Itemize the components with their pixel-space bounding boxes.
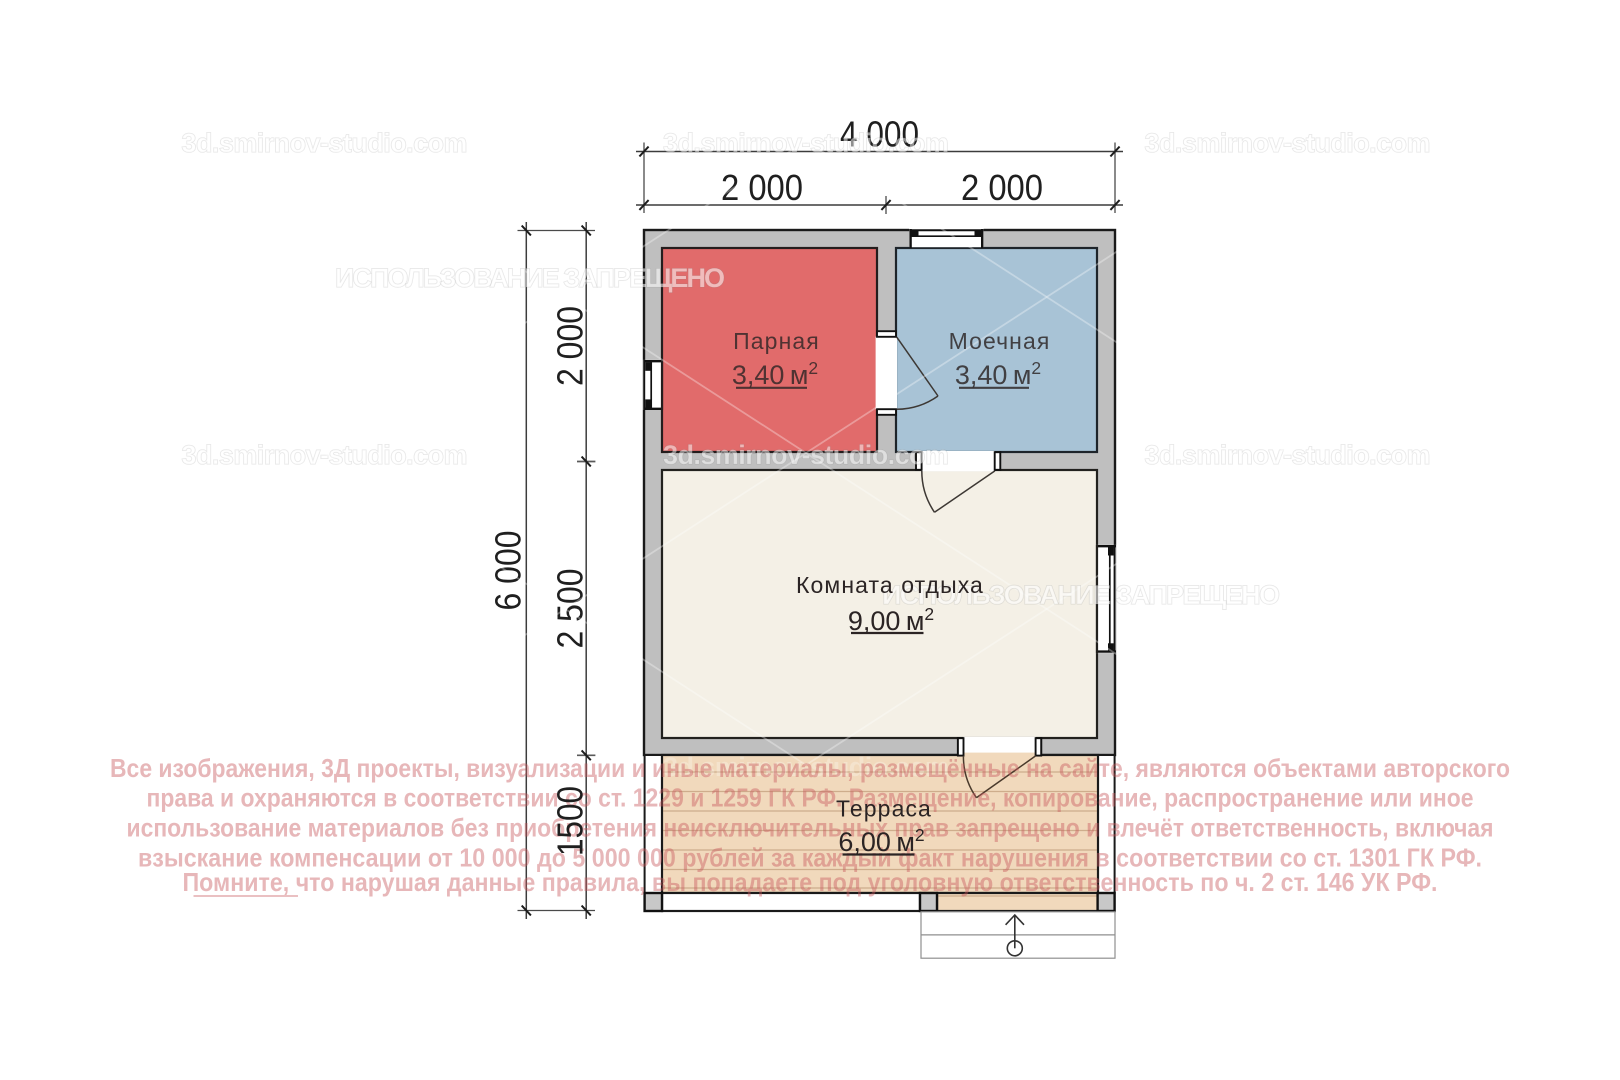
svg-text:использование материалов без п: использование материалов без приобретени… bbox=[127, 813, 1494, 843]
svg-text:Помните, что нарушая данные пр: Помните, что нарушая данные правила, вы … bbox=[183, 867, 1438, 897]
svg-text:6,00 м2: 6,00 м2 bbox=[838, 825, 924, 857]
svg-text:3d.smirnov-studio.com: 3d.smirnov-studio.com bbox=[663, 128, 949, 158]
svg-text:2 000: 2 000 bbox=[550, 306, 591, 386]
svg-text:2 000: 2 000 bbox=[961, 167, 1043, 208]
svg-text:3d.smirnov-studio.com: 3d.smirnov-studio.com bbox=[182, 128, 468, 158]
svg-text:права и охраняются в соответст: права и охраняются в соответствии со ст.… bbox=[147, 783, 1474, 813]
svg-text:Терраса: Терраса bbox=[836, 796, 932, 822]
svg-text:3d.smirnov-studio.com: 3d.smirnov-studio.com bbox=[182, 440, 468, 470]
svg-text:3d.smirnov-studio.com: 3d.smirnov-studio.com bbox=[1145, 128, 1431, 158]
svg-text:3,40 м2: 3,40 м2 bbox=[955, 358, 1041, 390]
svg-text:Все изображения, 3Д проекты, в: Все изображения, 3Д проекты, визуализаци… bbox=[110, 753, 1510, 783]
svg-text:3,40 м2: 3,40 м2 bbox=[732, 358, 818, 390]
svg-text:Моечная: Моечная bbox=[949, 328, 1051, 354]
svg-text:Комната отдыха: Комната отдыха bbox=[796, 572, 984, 598]
svg-text:2 500: 2 500 bbox=[550, 569, 591, 649]
svg-text:3d.smirnov-studio.com: 3d.smirnov-studio.com bbox=[663, 440, 949, 470]
svg-text:3d.smirnov-studio.com: 3d.smirnov-studio.com bbox=[1145, 440, 1431, 470]
svg-text:Парная: Парная bbox=[733, 328, 820, 354]
svg-text:1500: 1500 bbox=[550, 786, 591, 856]
svg-text:6 000: 6 000 bbox=[488, 531, 529, 611]
svg-text:9,00 м2: 9,00 м2 bbox=[848, 604, 934, 636]
svg-text:ИСПОЛЬЗОВАНИЕ ЗАПРЕЩЕНО: ИСПОЛЬЗОВАНИЕ ЗАПРЕЩЕНО bbox=[335, 263, 725, 293]
